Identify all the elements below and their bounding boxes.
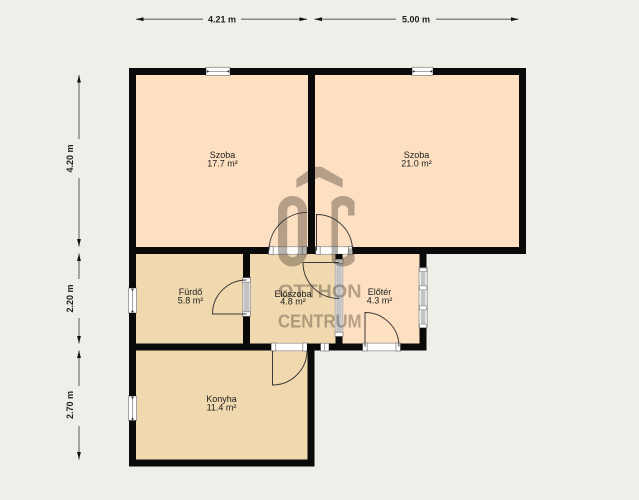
- svg-text:4.21 m: 4.21 m: [208, 14, 236, 24]
- svg-text:5.00 m: 5.00 m: [402, 14, 430, 24]
- svg-text:4.3 m²: 4.3 m²: [367, 296, 393, 306]
- svg-text:11.4 m²: 11.4 m²: [207, 403, 237, 413]
- svg-text:4.20 m: 4.20 m: [65, 144, 75, 172]
- svg-text:5.8 m²: 5.8 m²: [178, 296, 204, 306]
- svg-text:21.0 m²: 21.0 m²: [401, 159, 432, 169]
- svg-text:4.8 m²: 4.8 m²: [280, 297, 306, 307]
- svg-text:CENTRUM: CENTRUM: [278, 312, 362, 332]
- svg-text:2.20 m: 2.20 m: [65, 284, 75, 312]
- svg-text:2.70 m: 2.70 m: [65, 391, 75, 419]
- svg-text:17.7 m²: 17.7 m²: [207, 159, 238, 169]
